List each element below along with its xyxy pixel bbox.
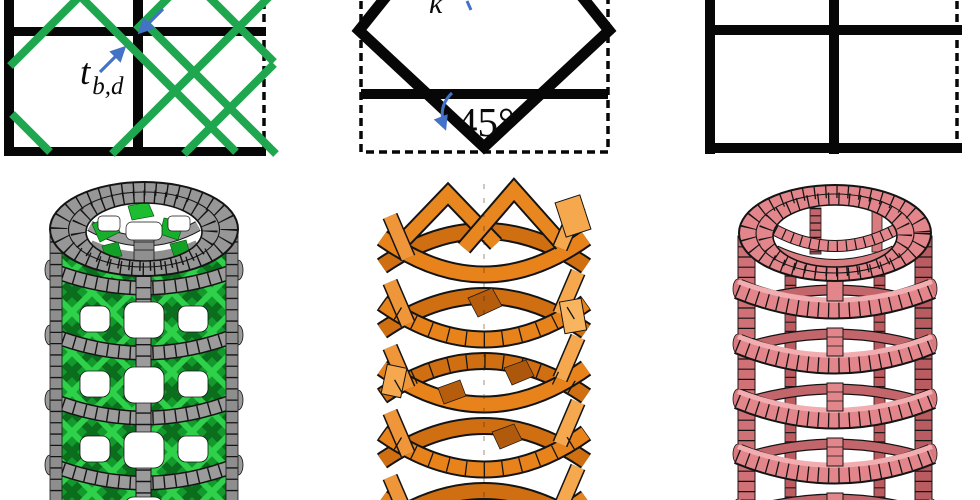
schematic-plain-grid-panel xyxy=(705,0,962,154)
top-ring xyxy=(739,185,931,281)
thickness-label: tb,d xyxy=(80,52,124,100)
thickness-arrows xyxy=(100,9,163,72)
schematic-diagonal-grid-panel: tb,d xyxy=(4,0,276,156)
horizontal-strut xyxy=(361,89,608,99)
cropped-blue-arrow-fragment xyxy=(467,1,471,10)
top-ring xyxy=(50,182,238,276)
lattice-model-diamond xyxy=(381,184,591,500)
thickness-arrow-lower-icon xyxy=(100,48,124,72)
grid-frame xyxy=(705,0,962,154)
cropped-top-label: k xyxy=(429,0,443,20)
schematic-diamond-panel: 45° k xyxy=(359,0,609,152)
angle-label: 45° xyxy=(457,99,514,145)
figure-svg: tb,d 45° k xyxy=(0,0,980,500)
lattice-model-plain-grid xyxy=(733,185,937,500)
figure-canvas: tb,d 45° k xyxy=(0,0,980,500)
lattice-model-diagonal-grid xyxy=(45,182,243,500)
